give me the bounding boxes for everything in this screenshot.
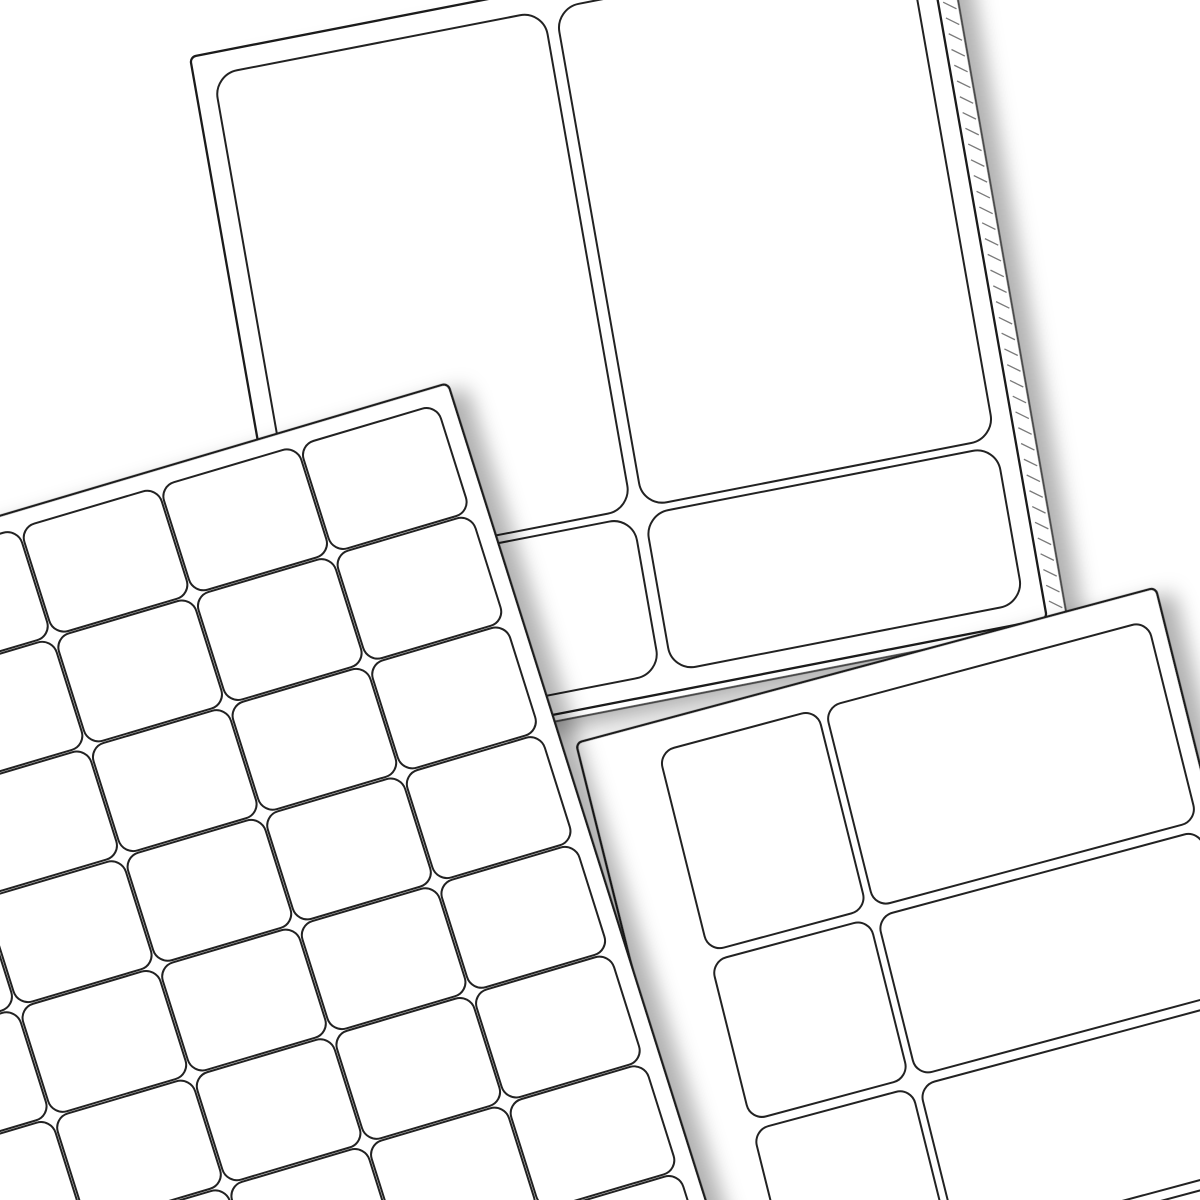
product-image-canvas (0, 0, 1200, 1200)
label-sheets-product-image (0, 0, 1200, 1200)
